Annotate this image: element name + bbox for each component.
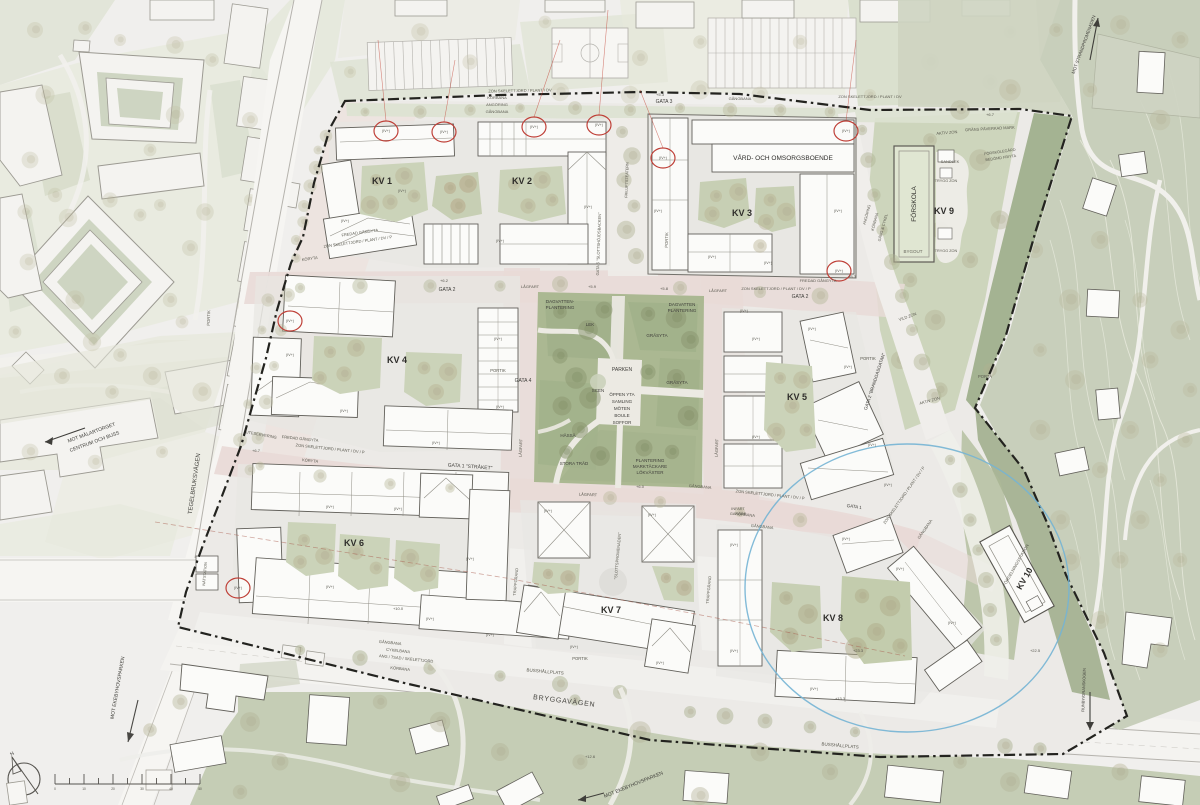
svg-text:STORA TRÄD: STORA TRÄD bbox=[560, 460, 589, 466]
svg-text:SAMLING: SAMLING bbox=[612, 399, 633, 404]
svg-text:(IV+): (IV+) bbox=[426, 617, 434, 621]
svg-text:VÅRD- OCH OMSORGSBOENDE: VÅRD- OCH OMSORGSBOENDE bbox=[733, 153, 833, 162]
svg-text:+10.0: +10.0 bbox=[393, 606, 404, 611]
svg-text:KV 6: KV 6 bbox=[344, 538, 364, 548]
svg-text:ZON SKELETTJORD / PLANT / DV /: ZON SKELETTJORD / PLANT / DV / P bbox=[741, 286, 811, 291]
svg-text:ZON SKELETTJORD / PLANT / DV: ZON SKELETTJORD / PLANT / DV bbox=[838, 94, 902, 99]
svg-text:(IV+): (IV+) bbox=[656, 661, 664, 665]
svg-text:SCEN: SCEN bbox=[592, 388, 605, 393]
svg-text:(IV+): (IV+) bbox=[544, 509, 552, 513]
svg-text:ANGÖRING: ANGÖRING bbox=[486, 102, 508, 107]
svg-text:MARKTÄCKARE: MARKTÄCKARE bbox=[633, 463, 667, 469]
svg-text:+5.8: +5.8 bbox=[660, 286, 669, 291]
svg-text:PORTIK: PORTIK bbox=[206, 310, 212, 326]
svg-text:GÅNGBANA: GÅNGBANA bbox=[729, 96, 752, 101]
svg-text:(IV+): (IV+) bbox=[868, 443, 876, 447]
svg-text:+6.7: +6.7 bbox=[986, 112, 995, 117]
svg-text:+22.5: +22.5 bbox=[1030, 648, 1041, 653]
svg-text:(IV+): (IV+) bbox=[398, 189, 406, 193]
svg-text:(IV+): (IV+) bbox=[340, 409, 348, 413]
svg-text:(IV+): (IV+) bbox=[659, 156, 667, 160]
svg-text:DAGVATTEN: DAGVATTEN bbox=[669, 302, 696, 307]
svg-text:(IV+): (IV+) bbox=[730, 543, 738, 547]
svg-text:+5.3: +5.3 bbox=[848, 274, 857, 279]
svg-text:PORTIK: PORTIK bbox=[860, 356, 876, 361]
svg-text:LÅGFART: LÅGFART bbox=[709, 288, 728, 293]
svg-text:(IV+): (IV+) bbox=[844, 365, 852, 369]
svg-text:(IV+): (IV+) bbox=[810, 687, 818, 691]
svg-text:GARAGE: GARAGE bbox=[730, 512, 747, 516]
svg-text:(IV+): (IV+) bbox=[896, 567, 904, 571]
svg-text:+13.3: +13.3 bbox=[835, 696, 846, 701]
svg-text:LÖKVÄXTER: LÖKVÄXTER bbox=[636, 469, 664, 475]
svg-text:LÅGFART: LÅGFART bbox=[518, 438, 524, 457]
svg-text:(IV+): (IV+) bbox=[440, 130, 448, 134]
svg-text:SANDLEK: SANDLEK bbox=[941, 159, 960, 164]
svg-text:(IV+): (IV+) bbox=[808, 327, 816, 331]
svg-text:KV 5: KV 5 bbox=[787, 392, 807, 402]
svg-text:PORTIK: PORTIK bbox=[664, 232, 670, 248]
svg-text:TRYGG ZON: TRYGG ZON bbox=[935, 249, 958, 253]
svg-text:10: 10 bbox=[82, 787, 86, 791]
svg-text:(IV+): (IV+) bbox=[326, 585, 334, 589]
svg-text:+23.3: +23.3 bbox=[853, 648, 864, 653]
svg-text:KV 8: KV 8 bbox=[823, 613, 843, 623]
svg-text:(IV+): (IV+) bbox=[752, 435, 760, 439]
svg-text:KV 3: KV 3 bbox=[732, 208, 752, 218]
svg-text:+5.9: +5.9 bbox=[588, 284, 597, 289]
svg-text:INFART: INFART bbox=[731, 507, 745, 511]
svg-text:+12.6: +12.6 bbox=[585, 754, 596, 759]
svg-text:(IV+): (IV+) bbox=[466, 557, 474, 561]
svg-text:(IV+): (IV+) bbox=[835, 269, 843, 273]
svg-text:+6.2: +6.2 bbox=[440, 278, 449, 283]
svg-text:PLANTERING: PLANTERING bbox=[546, 305, 575, 310]
svg-text:(IV+): (IV+) bbox=[530, 125, 538, 129]
svg-text:GRÄSYTA: GRÄSYTA bbox=[646, 332, 667, 338]
svg-text:KV 4: KV 4 bbox=[387, 355, 407, 365]
svg-text:+6.0: +6.0 bbox=[636, 484, 645, 489]
svg-text:GÅNGBANA: GÅNGBANA bbox=[486, 109, 509, 114]
svg-text:ÖPPEN YTA: ÖPPEN YTA bbox=[609, 391, 634, 397]
svg-text:SOFFOR: SOFFOR bbox=[613, 420, 632, 425]
svg-text:(IV+): (IV+) bbox=[764, 261, 772, 265]
svg-text:BYGOUT: BYGOUT bbox=[903, 249, 922, 254]
svg-text:(IV+): (IV+) bbox=[286, 353, 294, 357]
svg-text:20: 20 bbox=[111, 787, 115, 791]
svg-text:(IV+): (IV+) bbox=[654, 209, 662, 213]
svg-text:PORTA: PORTA bbox=[978, 374, 992, 379]
svg-text:HÄSSÄ: HÄSSÄ bbox=[560, 432, 575, 438]
svg-text:+6.7: +6.7 bbox=[252, 448, 261, 453]
svg-text:LÅGFART: LÅGFART bbox=[714, 438, 720, 457]
svg-text:40: 40 bbox=[169, 787, 173, 791]
svg-text:0: 0 bbox=[54, 787, 56, 791]
svg-text:DAGVATTEN-: DAGVATTEN- bbox=[546, 299, 575, 304]
svg-text:PORTIK: PORTIK bbox=[490, 368, 506, 373]
svg-text:(IV+): (IV+) bbox=[326, 505, 334, 509]
svg-text:+5.3: +5.3 bbox=[656, 92, 665, 97]
svg-text:30: 30 bbox=[140, 787, 144, 791]
svg-text:(IV+): (IV+) bbox=[382, 129, 390, 133]
svg-text:KV 9: KV 9 bbox=[934, 206, 954, 216]
svg-text:(IV+): (IV+) bbox=[496, 239, 504, 243]
svg-text:MÖTEN: MÖTEN bbox=[614, 405, 630, 411]
svg-text:50: 50 bbox=[198, 787, 202, 791]
svg-text:(IV+): (IV+) bbox=[752, 337, 760, 341]
svg-text:LEK: LEK bbox=[586, 322, 595, 327]
svg-text:(IV+): (IV+) bbox=[486, 633, 494, 637]
svg-text:(IV+): (IV+) bbox=[842, 537, 850, 541]
svg-text:(IV+): (IV+) bbox=[286, 319, 294, 323]
svg-text:KV 7: KV 7 bbox=[601, 605, 621, 615]
svg-text:(IV+): (IV+) bbox=[494, 337, 502, 341]
svg-text:GATA 4: GATA 4 bbox=[515, 378, 532, 384]
svg-text:GATA 3: GATA 3 bbox=[656, 99, 673, 105]
svg-text:PORTIK: PORTIK bbox=[572, 656, 588, 661]
svg-text:(IV+): (IV+) bbox=[234, 586, 242, 590]
svg-text:LÅGFART: LÅGFART bbox=[521, 284, 540, 289]
svg-text:KV 1: KV 1 bbox=[372, 176, 392, 186]
svg-text:GATA 2: GATA 2 bbox=[439, 287, 456, 293]
svg-text:FREDAD GÅNGYTA: FREDAD GÅNGYTA bbox=[800, 278, 837, 283]
svg-text:FÖRSKOLA: FÖRSKOLA bbox=[910, 186, 918, 222]
svg-text:GATA 2: GATA 2 bbox=[792, 294, 809, 300]
svg-text:PARKEN: PARKEN bbox=[612, 367, 633, 373]
svg-text:KÖRBANA: KÖRBANA bbox=[487, 95, 507, 100]
svg-text:(IV+): (IV+) bbox=[341, 219, 349, 223]
svg-text:(IV+): (IV+) bbox=[708, 255, 716, 259]
svg-text:(IV+): (IV+) bbox=[730, 649, 738, 653]
svg-text:(IV+): (IV+) bbox=[595, 123, 603, 127]
svg-text:BOULE: BOULE bbox=[614, 413, 629, 418]
svg-text:TRYGG ZON: TRYGG ZON bbox=[935, 179, 958, 183]
svg-text:(IV+): (IV+) bbox=[570, 645, 578, 649]
svg-text:LÅGFART: LÅGFART bbox=[579, 492, 598, 498]
svg-text:(IV+): (IV+) bbox=[432, 441, 440, 445]
svg-text:(IV+): (IV+) bbox=[948, 621, 956, 625]
svg-text:(IV+): (IV+) bbox=[584, 205, 592, 209]
svg-text:(IV+): (IV+) bbox=[648, 513, 656, 517]
svg-text:(IV+): (IV+) bbox=[884, 483, 892, 487]
svg-text:(IV+): (IV+) bbox=[842, 129, 850, 133]
svg-text:KV 2: KV 2 bbox=[512, 176, 532, 186]
svg-text:(IV+): (IV+) bbox=[740, 309, 748, 313]
svg-text:PLANTERING: PLANTERING bbox=[668, 308, 697, 313]
svg-text:PLANTERING: PLANTERING bbox=[636, 458, 665, 463]
svg-text:(IV+): (IV+) bbox=[496, 405, 504, 409]
svg-text:GRÄSYTA: GRÄSYTA bbox=[666, 379, 687, 385]
svg-text:(IV+): (IV+) bbox=[394, 507, 402, 511]
svg-text:(IV+): (IV+) bbox=[834, 209, 842, 213]
